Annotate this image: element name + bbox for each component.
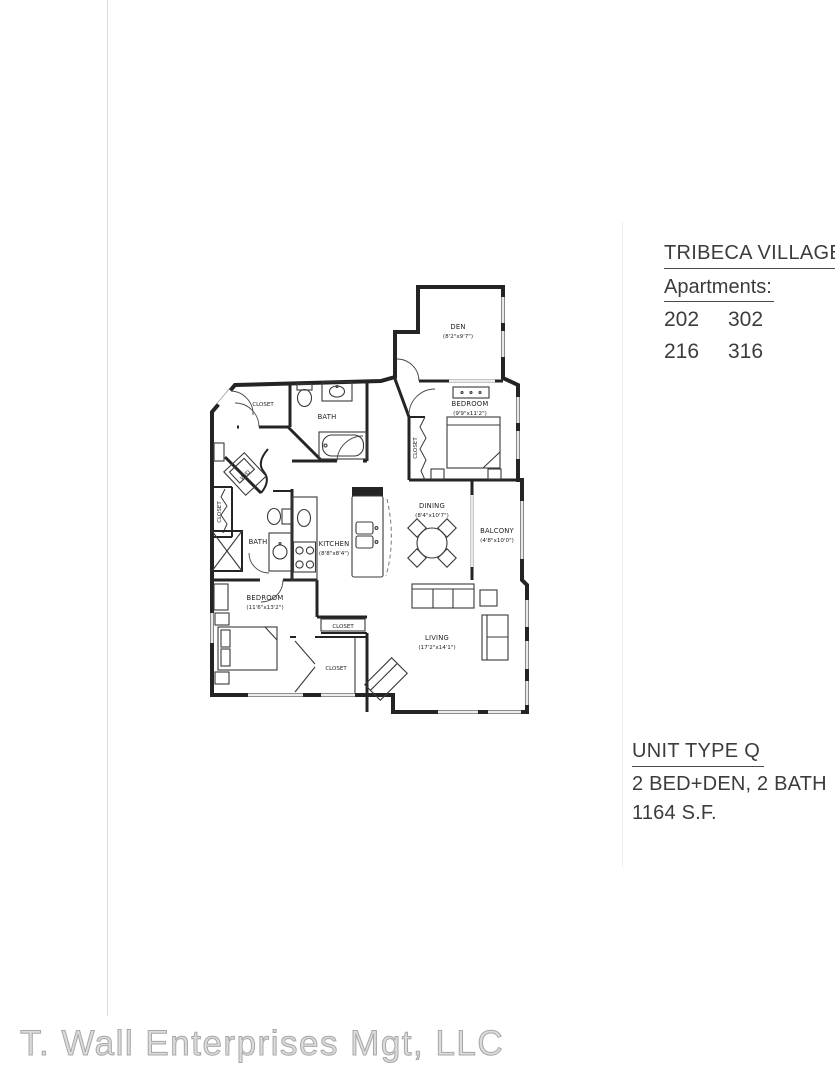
- label-bedroom-upper-dims: (9'9"x11'2"): [453, 411, 487, 417]
- label-bath-lower: BATH: [249, 538, 268, 546]
- label-bath-upper: BATH: [318, 413, 337, 421]
- living-room-furniture: [365, 584, 508, 700]
- apartments-heading: Apartments:: [664, 276, 774, 302]
- label-bedroom-lower-dims: (11'6"x13'2"): [246, 605, 283, 611]
- label-closet-hall: CLOSET: [217, 501, 223, 523]
- label-living-dims: (17'2"x14'1"): [418, 645, 455, 651]
- property-title: TRIBECA VILLAGE: [664, 242, 835, 269]
- exterior-walls: [212, 287, 527, 712]
- scan-artifact-line-right: [622, 222, 623, 867]
- label-kitchen-dims: (8'8"x8'4"): [319, 551, 349, 557]
- label-den-dims: (8'2"x9'7"): [443, 334, 473, 340]
- label-kitchen: KITCHEN: [319, 540, 350, 548]
- label-dining-dims: (8'4"x10'7"): [415, 513, 449, 519]
- label-balcony: BALCONY: [480, 527, 514, 535]
- floorplan-drawing: DEN (8'2"x9'7") BEDROOM (9'9"x11'2") CLO…: [185, 275, 545, 725]
- label-living: LIVING: [425, 634, 449, 642]
- apartment-numbers: 202 302 216 316: [664, 308, 835, 364]
- label-closet-lower: CLOSET: [325, 666, 347, 672]
- entry-shelf: [214, 443, 224, 461]
- label-closet-entry: CLOSET: [252, 402, 274, 408]
- unit-layout: 2 BED+DEN, 2 BATH: [632, 773, 827, 796]
- property-info-panel: TRIBECA VILLAGE Apartments: 202 302 216 …: [664, 242, 835, 364]
- apartment-number: 316: [728, 340, 835, 364]
- label-balcony-dims: (4'8"x10'0"): [480, 538, 514, 544]
- scanned-floorplan-page: DEN (8'2"x9'7") BEDROOM (9'9"x11'2") CLO…: [0, 0, 835, 1080]
- label-dining: DINING: [419, 502, 445, 510]
- apartment-number: 302: [728, 308, 835, 332]
- label-closet-upper-band: CLOSET: [332, 624, 354, 630]
- room-labels: DEN (8'2"x9'7") BEDROOM (9'9"x11'2") CLO…: [217, 323, 515, 672]
- unit-type: UNIT TYPE Q: [632, 740, 764, 767]
- company-watermark: T. Wall Enterprises Mgt, LLC: [20, 1024, 504, 1064]
- apartment-number: 202: [664, 308, 728, 332]
- label-den: DEN: [450, 323, 465, 331]
- unit-area: 1164 S.F.: [632, 802, 827, 825]
- kitchen-fixtures: [292, 487, 391, 581]
- scan-artifact-line-left: [107, 0, 108, 1016]
- label-bedroom-upper: BEDROOM: [452, 400, 489, 408]
- dining-table-set: [408, 519, 456, 567]
- apartment-number: 216: [664, 340, 728, 364]
- unit-summary-panel: UNIT TYPE Q 2 BED+DEN, 2 BATH 1164 S.F.: [632, 740, 827, 825]
- label-bedroom-lower: BEDROOM: [247, 594, 284, 602]
- label-closet-bedroom-upper: CLOSET: [413, 437, 419, 459]
- windows: [212, 297, 527, 712]
